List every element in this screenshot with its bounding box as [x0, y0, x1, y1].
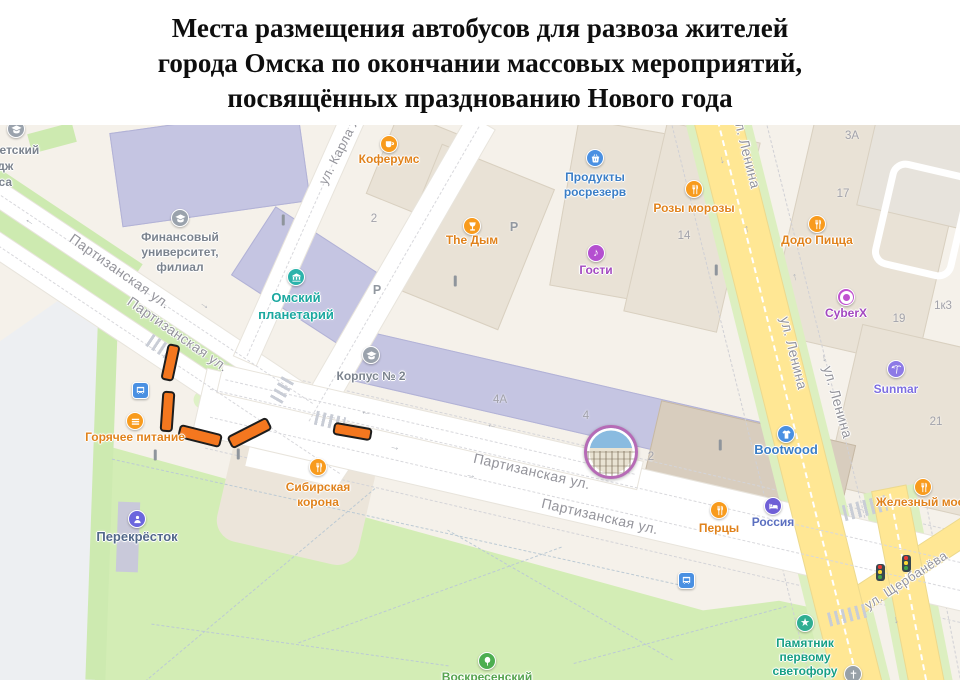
- bus-stop-icon[interactable]: [678, 572, 695, 589]
- pamyatnik-pervomu-svetoforu-label[interactable]: Памятникпервомусветофору: [773, 636, 838, 678]
- building-number: 4А: [493, 394, 507, 406]
- produkty-rosrezerv-label[interactable]: Продуктыросрезерв: [564, 170, 626, 200]
- the-dym-label[interactable]: The Дым: [446, 233, 498, 248]
- poi-label-line: CyberX: [825, 306, 867, 321]
- title-line-3: посвящённых празднованию Нового года: [227, 81, 732, 116]
- poi-label-line: первому: [773, 650, 838, 664]
- poi-label-line: Гости: [579, 263, 612, 278]
- church-icon[interactable]: [844, 665, 862, 680]
- pole-icon: [715, 265, 718, 276]
- building-number: 3А: [845, 130, 859, 142]
- poi-label-line: Додо Пицца: [781, 233, 853, 248]
- pole-icon: [237, 449, 240, 460]
- poi-label-line: Продукты: [564, 170, 626, 185]
- gosti-icon[interactable]: ♪: [587, 244, 605, 262]
- building-number: 21: [930, 416, 943, 428]
- pertsy-label[interactable]: Перцы: [699, 521, 739, 536]
- road-direction-arrow: →: [197, 297, 213, 313]
- koferums-label[interactable]: Коферумс: [359, 152, 420, 167]
- korpus-2-icon[interactable]: [362, 346, 380, 364]
- pole-icon: [454, 276, 457, 287]
- pole-icon: [719, 440, 722, 451]
- poi-label-line: росрезерв: [564, 185, 626, 200]
- poi-label-line: Перцы: [699, 521, 739, 536]
- finansovy-universitet-icon[interactable]: [171, 209, 189, 227]
- poi-label-line: Россия: [752, 515, 795, 530]
- building-number: 4: [583, 410, 589, 422]
- title-line-2: города Омска по окончании массовых мероп…: [158, 46, 802, 81]
- poi-label-line: корона: [286, 495, 351, 510]
- building-number: 2: [648, 451, 654, 463]
- poi-label-line: колледж: [0, 158, 39, 174]
- poi-label-line: Памятник: [773, 636, 838, 650]
- title-line-1: Места размещения автобусов для развоза ж…: [172, 11, 789, 46]
- map-canvas[interactable]: Партизанская ул.Партизанская ул.Партизан…: [0, 125, 960, 680]
- zhelezny-most-label[interactable]: Железный мост: [876, 495, 960, 510]
- building-number: 14: [678, 230, 691, 242]
- poi-label-line: университет,: [141, 245, 219, 260]
- koferums-icon[interactable]: [380, 135, 398, 153]
- goryachee-pitanie-label[interactable]: Горячее питание: [85, 430, 185, 445]
- cyberx-label[interactable]: CyberX: [825, 306, 867, 321]
- sibirskaya-korona-label[interactable]: Сибирскаякорона: [286, 480, 351, 510]
- dodo-pizza-icon[interactable]: [808, 215, 826, 233]
- pertsy-icon[interactable]: [710, 501, 728, 519]
- poi-label-line: Розы морозы: [653, 201, 734, 216]
- kolledzh-biznesa-label[interactable]: Университетскийколледжбизнеса: [0, 142, 39, 190]
- poi-label-line: светофору: [773, 664, 838, 678]
- poi-label-line: Перекрёсток: [96, 529, 177, 544]
- dodo-pizza-label[interactable]: Додо Пицца: [781, 233, 853, 248]
- goryachee-pitanie-icon[interactable]: [126, 412, 144, 430]
- building-number: 2: [371, 213, 377, 225]
- poi-label-line: Университетский: [0, 142, 39, 158]
- omsky-planetariy-label[interactable]: Омскийпланетарий: [258, 289, 334, 323]
- poi-label-line: Горячее питание: [85, 430, 185, 445]
- sunmar-label[interactable]: Sunmar: [874, 382, 919, 397]
- traffic-light-icon: [902, 555, 911, 572]
- page-title: Места размещения автобусов для развоза ж…: [0, 0, 960, 125]
- bootwood-label[interactable]: Bootwood: [754, 442, 818, 457]
- voskresensky-icon[interactable]: [478, 652, 496, 670]
- poi-label-line: филиал: [141, 260, 219, 275]
- poi-label-line: Финансовый: [141, 230, 219, 245]
- building-number: 17: [837, 188, 850, 200]
- kolledzh-biznesa-icon[interactable]: [7, 125, 25, 138]
- poi-label-line: Sunmar: [874, 382, 919, 397]
- rozy-morozy-icon[interactable]: [685, 180, 703, 198]
- poi-label-line: бизнеса: [0, 174, 39, 190]
- perekrestok-label[interactable]: Перекрёсток: [96, 529, 177, 544]
- parking-sign: P: [373, 283, 381, 297]
- rozy-morozy-label[interactable]: Розы морозы: [653, 201, 734, 216]
- pamyatnik-pervomu-svetoforu-icon[interactable]: ★: [796, 614, 814, 632]
- bus-stop-icon[interactable]: [132, 382, 149, 399]
- sunmar-icon[interactable]: [887, 360, 905, 378]
- pole-icon: [154, 450, 157, 461]
- produkty-rosrezerv-icon[interactable]: [586, 149, 604, 167]
- sibirskaya-korona-icon[interactable]: [309, 458, 327, 476]
- rossiya-icon[interactable]: [764, 497, 782, 515]
- voskresensky-label[interactable]: Воскресенский: [442, 670, 532, 680]
- traffic-light-icon: [876, 564, 885, 581]
- bootwood-icon[interactable]: [777, 425, 795, 443]
- parking-sign: P: [510, 220, 518, 234]
- zhelezny-most-icon[interactable]: [914, 478, 932, 496]
- gosti-label[interactable]: Гости: [579, 263, 612, 278]
- korpus-2-label[interactable]: Корпус № 2: [337, 369, 406, 384]
- perekrestok-icon[interactable]: [128, 510, 146, 528]
- omsky-planetariy-icon[interactable]: [287, 268, 305, 286]
- building-number: 1к3: [934, 300, 952, 312]
- road-direction-arrow: ↓: [820, 352, 828, 365]
- poi-label-line: Коферумс: [359, 152, 420, 167]
- poi-label-line: Воскресенский: [442, 670, 532, 680]
- poi-label-line: Омский: [258, 289, 334, 306]
- poi-label-line: The Дым: [446, 233, 498, 248]
- photo-facade: [587, 451, 635, 476]
- poi-label-line: Корпус № 2: [337, 369, 406, 384]
- finansovy-universitet-label[interactable]: Финансовыйуниверситет,филиал: [141, 230, 219, 275]
- building-number: 19: [893, 313, 906, 325]
- poi-label-line: Bootwood: [754, 442, 818, 457]
- rossiya-label[interactable]: Россия: [752, 515, 795, 530]
- poi-label-line: Железный мост: [876, 495, 960, 510]
- poi-label-line: планетарий: [258, 306, 334, 323]
- poi-label-line: Сибирская: [286, 480, 351, 495]
- bus-placement-marker: [159, 390, 175, 432]
- pole-icon: [282, 215, 285, 226]
- building-photo-marker[interactable]: [584, 425, 638, 479]
- cyberx-icon[interactable]: [837, 288, 855, 306]
